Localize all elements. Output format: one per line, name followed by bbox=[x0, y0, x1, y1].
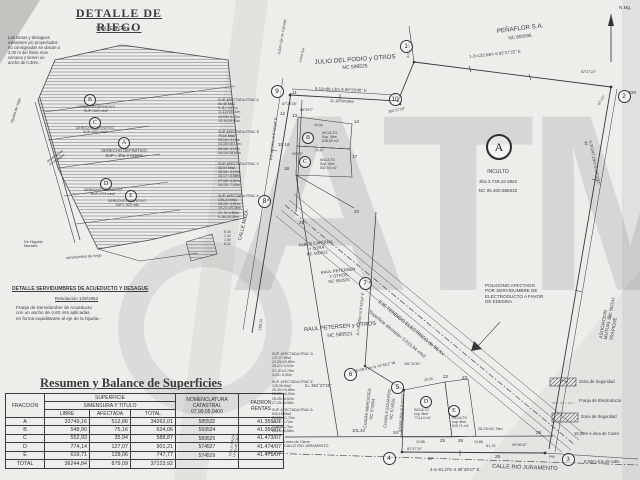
detail-note: Las tomas y desagues existentes y/o proy… bbox=[8, 36, 103, 66]
legend-linea-cierre: 15,00m–Línea de Cierre bbox=[574, 432, 619, 437]
point-5: 5 bbox=[391, 381, 404, 394]
point-label-29: 29 bbox=[536, 430, 541, 435]
cell: 589525 bbox=[176, 434, 239, 442]
cell: 127,07 bbox=[90, 443, 131, 451]
cell: 41.473/07 bbox=[239, 434, 284, 442]
map-parcel-d-marker: D bbox=[420, 396, 432, 408]
surface-table: FRACCION SUPERFICIE NOMENCLATURA CATASTR… bbox=[5, 393, 284, 469]
point-9: 9 bbox=[271, 85, 284, 98]
cell: 548,90 bbox=[45, 426, 90, 434]
point-7: 7 bbox=[359, 277, 372, 290]
cell: B bbox=[6, 426, 45, 434]
point-label-14: 14 bbox=[354, 119, 359, 124]
point-label-25: 25 bbox=[440, 438, 445, 443]
legend-zona-1: Zona de Seguridad bbox=[579, 380, 615, 385]
point-label-15-16: 15 16 bbox=[278, 142, 290, 147]
table-row: E619,71128,06747,7757452941.479/07 bbox=[6, 451, 284, 459]
detail-label-b: DERECHO DEFINITIVO SUP.=549 mts2 bbox=[61, 105, 131, 113]
zona-seguridad-swatch-1 bbox=[550, 378, 576, 386]
point-1: 1 bbox=[400, 40, 413, 53]
table-title: Resumen y Balance de Superficies bbox=[40, 376, 222, 391]
angle-3: 99°46'42" bbox=[512, 443, 527, 447]
legend-franja: Franja de Electroducto bbox=[579, 399, 621, 404]
map-parcel-c-marker: C bbox=[299, 156, 311, 168]
legend-zona-2: Zona de Seguridad bbox=[581, 415, 617, 420]
point-label-13: 13 bbox=[292, 113, 297, 118]
cell: 36244,84 bbox=[45, 460, 90, 468]
cell: 75,16 bbox=[90, 426, 131, 434]
benchmark-pm: PM bbox=[549, 455, 555, 459]
dim-23-87: 23,87 bbox=[315, 148, 324, 153]
angle-2a: 82°27'22" bbox=[581, 70, 596, 74]
cell: 588,87 bbox=[131, 434, 176, 442]
table-total-row: TOTAL36244,84879,0937123,92 bbox=[6, 460, 284, 468]
parcel-a-use: INCULTO bbox=[470, 170, 526, 176]
cell: 128,06 bbox=[90, 451, 131, 459]
point-label-27: 27 bbox=[428, 456, 433, 461]
servidumbre-title: DETALLE SERVIDUMBRES DE ACUEDUCTO Y DESA… bbox=[12, 287, 148, 293]
frac-note-e: SUP. AFECTADA-FRAC E 128,06 Mts2 25-26=1… bbox=[272, 380, 324, 405]
road-cierre-left: Línea de Cierre CALLE RIO JURAMENTO bbox=[284, 440, 328, 449]
parcel-d-label: INCULTO sup. libre 774,14 m2 bbox=[414, 408, 431, 420]
poligono-afectado-note: POLIGONO AFECTADO POR SERVIDUMBRE DE ELE… bbox=[485, 283, 543, 305]
detail-label-a: DERECHO DEFINITIVO SUP.= 3ha 3.749m2 bbox=[86, 149, 162, 159]
detail-dims: 5,45 1,30 1,50 5,00 bbox=[224, 230, 231, 247]
angle-15: 90°0'0" bbox=[292, 152, 303, 156]
frac-note-b: SUP. AFECTADA-FRAC B 75,16 Mts2 13-14= 4… bbox=[218, 130, 270, 155]
detail-higuelo-label: De Higuelo Morales bbox=[24, 240, 43, 249]
irrigation-parcel-hatch bbox=[38, 45, 244, 249]
point-label-22: 22 bbox=[443, 374, 448, 379]
point-10: 10 bbox=[389, 93, 402, 106]
point-label-18: 18 bbox=[284, 166, 289, 171]
point-label-20: 20 bbox=[354, 209, 359, 214]
angle-13: 88°29'2" bbox=[300, 108, 313, 112]
detail-label-d: DERECHO DEFINITIVO SUP.=774 mts2 bbox=[68, 188, 138, 196]
point-label-26: 26 bbox=[458, 438, 463, 443]
cell: 619,71 bbox=[45, 451, 90, 459]
frac-note-c: SUP. AFECTADA-FRAC C 35,94 Mts2 15-16= 4… bbox=[218, 162, 270, 187]
col-libre: LIBRE bbox=[45, 410, 90, 418]
point-label-12: 12 bbox=[280, 111, 285, 116]
col-nomenclatura: NOMENCLATURA CATASTRAL 07.99.05.0400 bbox=[176, 394, 239, 418]
point-label-21: 21 bbox=[299, 220, 304, 225]
angle-4: 81°47'24" bbox=[407, 447, 422, 451]
cell: 879,09 bbox=[90, 460, 131, 468]
col-afectada: AFECTADA bbox=[90, 410, 131, 418]
detail-label-c: DERECHO DEFINITIVO SUP.=553 mts2 bbox=[60, 126, 130, 134]
frac-note-a3: SUP. AFECTADA-FRAC A 540,15 Mts2 29-30=5… bbox=[272, 408, 324, 433]
legend-eje-calle: 0,50m–Eje de calle bbox=[584, 460, 620, 465]
parcel-a-nc: NC 05.400.585532 bbox=[462, 188, 534, 193]
cell: TOTAL bbox=[6, 460, 45, 468]
table-row: D774,14127,07901,2157452741.474/07 bbox=[6, 443, 284, 451]
poligono-arrow bbox=[478, 322, 500, 346]
frac-note-a1: SUP. AFECTADA-FRAC A 66,45 Mts2 9-11= 4,… bbox=[218, 98, 270, 123]
poligono-arrowhead bbox=[471, 341, 482, 351]
frac-note-d: SUP. AFECTADA-FRAC D 127,07 Mts2 24-25=1… bbox=[272, 352, 324, 377]
cell: 585532 bbox=[176, 418, 239, 426]
cell: 512,86 bbox=[90, 418, 131, 426]
table-row: A33749,16512,8634262,0158553241.355/07 bbox=[6, 418, 284, 426]
north-label: N.Mg. bbox=[619, 5, 631, 10]
table-row: C552,9335,94588,8758952541.473/07 bbox=[6, 434, 284, 442]
cell: 41.474/07 bbox=[239, 443, 284, 451]
servidumbre-note: Franja de Servidumbre de Acueducto con u… bbox=[16, 305, 101, 321]
bearing-11-10: 11-10=84,88m bbox=[330, 99, 354, 104]
parcel-b-label: INCULTO Sup. libre 548,90 m2 bbox=[322, 131, 339, 143]
angle-5: 161°11'50" bbox=[404, 362, 421, 366]
cell: 33749,16 bbox=[45, 418, 90, 426]
parcel-e-label: INCULTO sup. libre 619,71 m2 bbox=[452, 416, 469, 428]
map-parcel-a-marker: A bbox=[486, 134, 512, 160]
cell: 34262,01 bbox=[131, 418, 176, 426]
cell: A bbox=[6, 418, 45, 426]
cell: 901,21 bbox=[131, 443, 176, 451]
col-superficie: SUPERFICIE bbox=[45, 394, 176, 402]
bearing-3-4: 3-4=91,27m S 89°28'47" E bbox=[430, 468, 479, 473]
dim-19-88-a: 19,88 bbox=[416, 440, 425, 444]
point-label-28: 28 bbox=[495, 454, 500, 459]
cell: 35,94 bbox=[90, 434, 131, 442]
cell: D bbox=[6, 443, 45, 451]
cell bbox=[176, 460, 239, 468]
cell: 41.479/07 bbox=[239, 451, 284, 459]
dim-51-76: 51,76 bbox=[486, 444, 496, 448]
parcel-c-label: INCULTO Sup. libre 552,93 m2 bbox=[320, 158, 337, 170]
detail-label-e: DERECHO DEFINITIVO SUP.= 620 mts bbox=[92, 199, 162, 207]
cell: 774,14 bbox=[45, 443, 90, 451]
cell: C bbox=[6, 434, 45, 442]
dim-28-88: 28,88 bbox=[314, 123, 323, 128]
cell bbox=[239, 460, 284, 468]
point-label-23: 23 bbox=[462, 375, 467, 380]
angle-9: 87°29'28" bbox=[282, 102, 297, 106]
cell: 552,93 bbox=[45, 434, 90, 442]
point-2: 2 bbox=[618, 90, 631, 103]
table-row: B548,9075,16624,0659352441.356/07 bbox=[6, 426, 284, 434]
cell: 593524 bbox=[176, 426, 239, 434]
point-6: 6 bbox=[344, 368, 357, 381]
dim-101: 101,34 bbox=[352, 429, 365, 434]
bearing-28-29: 28-29=51,78m bbox=[478, 427, 503, 431]
zona-seguridad-swatch-2 bbox=[552, 413, 578, 422]
servidumbre-resolution: Resolucion 129/1952 bbox=[55, 296, 98, 301]
detail-subtitle: SIN ESCALA bbox=[96, 27, 135, 33]
survey-sheet: ATM bbox=[0, 0, 640, 480]
dim-19-88-b: 19,88 bbox=[474, 440, 483, 444]
cell: 37123,92 bbox=[131, 460, 176, 468]
point-label-24: 24 bbox=[393, 430, 398, 435]
point-label-11: 11 bbox=[292, 90, 297, 95]
col-total: TOTAL bbox=[131, 410, 176, 418]
col-mensura: S/MENSURA Y TITULO bbox=[45, 402, 176, 410]
col-fraccion: FRACCION bbox=[6, 394, 45, 418]
cell: 624,06 bbox=[131, 426, 176, 434]
cell: 747,77 bbox=[131, 451, 176, 459]
point-8: 8 bbox=[258, 195, 271, 208]
point-label-17: 17 bbox=[352, 154, 357, 159]
point-4: 4 bbox=[383, 452, 396, 465]
map-parcel-b-marker: B bbox=[302, 132, 314, 144]
parcel-a-area: 3ha 3.749,16 Mts2 bbox=[462, 179, 534, 184]
cell: E bbox=[6, 451, 45, 459]
point-3: 3 bbox=[562, 453, 575, 466]
north-arrow bbox=[608, 14, 614, 62]
